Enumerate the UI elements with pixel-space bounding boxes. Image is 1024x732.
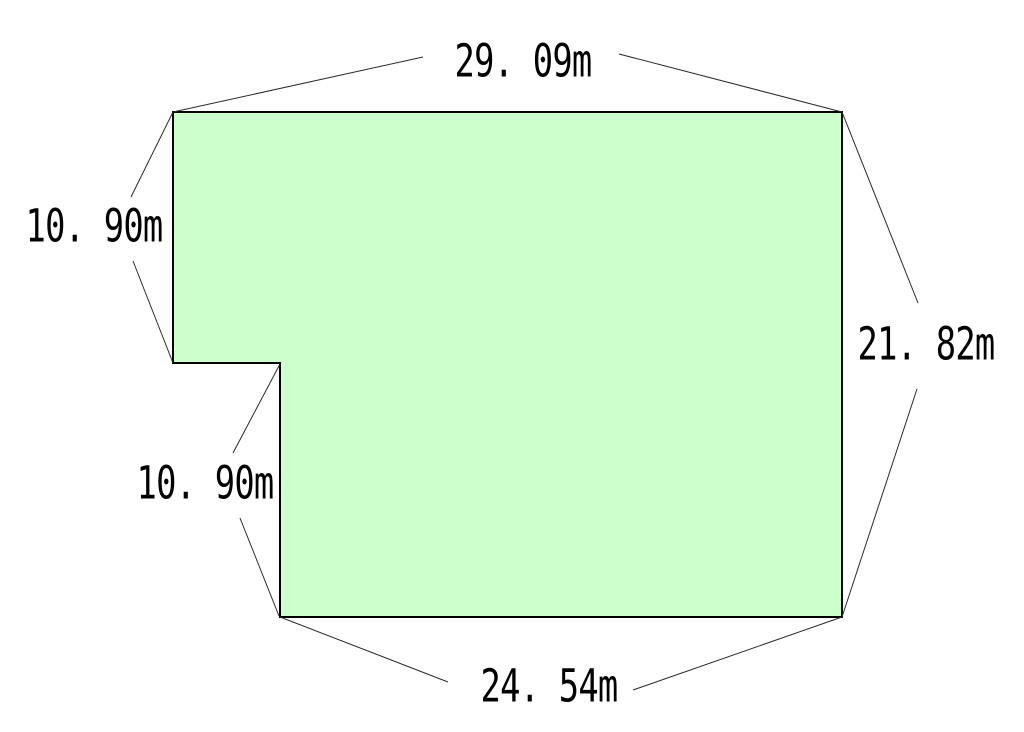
leader-line-bottom-right: [633, 617, 842, 690]
leader-line-left-lower-bottom: [240, 518, 279, 616]
dimension-label-left-upper: 10. 90m: [26, 204, 163, 249]
leader-line-left-lower-top: [233, 364, 280, 453]
dimension-label-left-lower: 10. 90m: [137, 461, 274, 506]
leader-line-right-bottom: [842, 389, 917, 617]
leader-line-bottom-left: [280, 617, 448, 682]
leader-line-top-right: [619, 54, 842, 112]
leader-line-left-upper-bottom: [133, 261, 173, 363]
dimension-label-bottom: 24. 54m: [481, 664, 618, 709]
leader-line-top-left: [173, 57, 423, 112]
leader-line-left-upper-top: [131, 112, 173, 197]
leader-line-right-top: [842, 112, 918, 303]
dimension-label-top: 29. 09m: [455, 39, 592, 84]
dimension-label-right: 21. 82m: [858, 322, 995, 367]
land-parcel-polygon: [173, 112, 842, 617]
plot-diagram: 29. 09m 10. 90m 10. 90m 21. 82m 24. 54m: [0, 0, 1024, 732]
